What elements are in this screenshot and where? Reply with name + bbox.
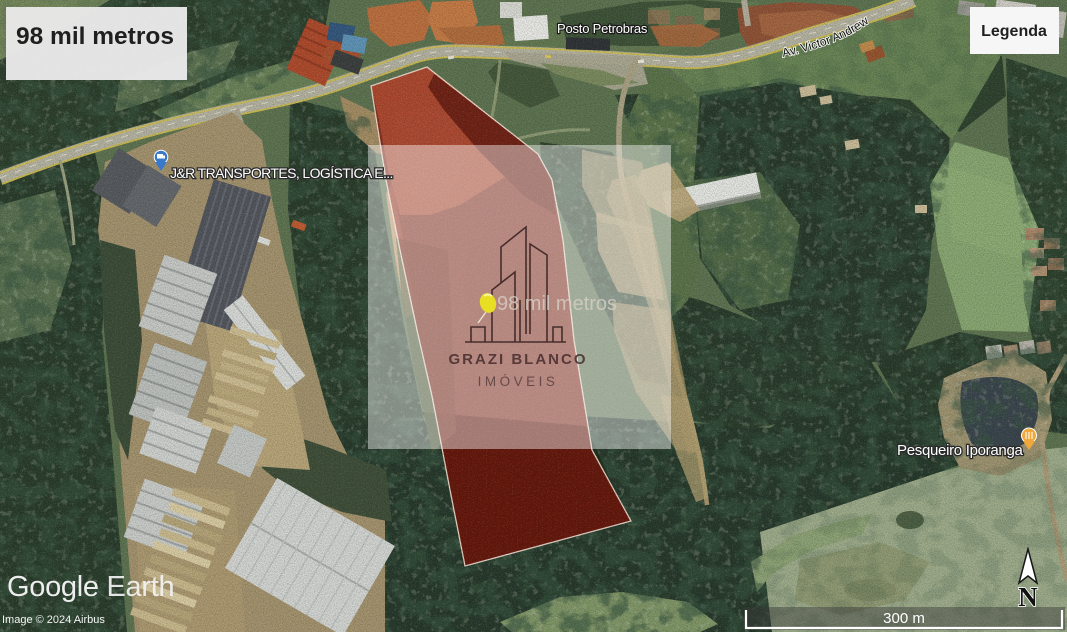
svg-text:N: N — [1018, 582, 1038, 612]
svg-text:J&R TRANSPORTES, LOGÍSTICA E..: J&R TRANSPORTES, LOGÍSTICA E... — [170, 165, 393, 181]
svg-text:300 m: 300 m — [883, 610, 925, 627]
svg-text:98 mil metros: 98 mil metros — [16, 23, 174, 50]
svg-text:GRAZI BLANCO: GRAZI BLANCO — [449, 351, 588, 368]
svg-text:Image © 2024 Airbus: Image © 2024 Airbus — [2, 614, 105, 626]
svg-text:98 mil metros: 98 mil metros — [497, 293, 617, 315]
svg-text:Google Earth: Google Earth — [7, 571, 174, 603]
svg-text:Pesqueiro Iporanga: Pesqueiro Iporanga — [897, 442, 1023, 459]
svg-text:Posto Petrobras: Posto Petrobras — [557, 21, 648, 36]
svg-text:Legenda: Legenda — [981, 23, 1047, 40]
svg-text:IMÓVEIS: IMÓVEIS — [478, 374, 559, 389]
